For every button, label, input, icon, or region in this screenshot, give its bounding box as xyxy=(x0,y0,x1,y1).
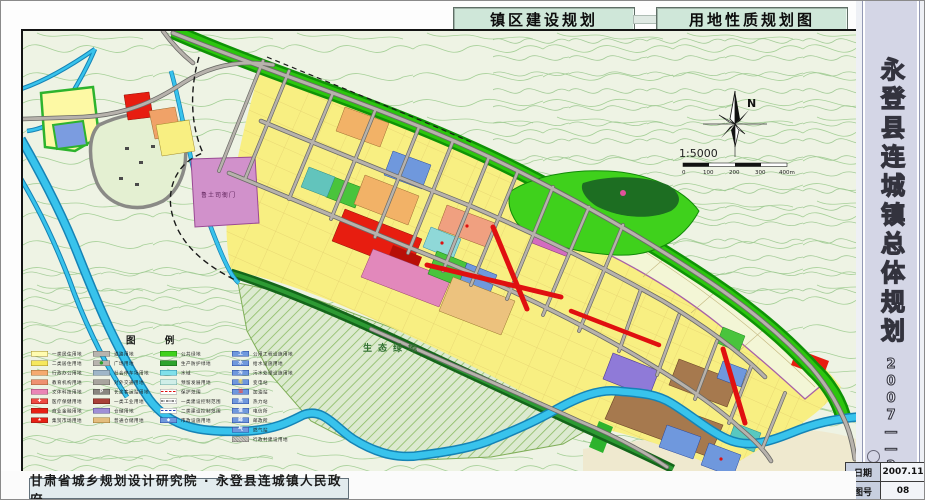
legend-column: 工公用工程设施用地水给水设施用地污污水处理设施用地电变电站油加油站热热力站信电信… xyxy=(232,351,293,443)
legend-label: 普通仓储用地 xyxy=(114,417,144,424)
legend-item: 信电信所 xyxy=(232,408,293,414)
scale-text: 1:5000 xyxy=(679,147,718,160)
legend-label: 二类建设控制范围 xyxy=(181,407,221,414)
svg-text:100: 100 xyxy=(703,170,714,176)
legend-swatch xyxy=(160,360,177,366)
svg-text:0: 0 xyxy=(682,170,686,176)
legend-column: 公共绿地生产防护绿地水域预留发展用地保护范围一类建设控制范围二类建设控制范围◆市… xyxy=(160,351,221,443)
legend-label: 行政村建设用地 xyxy=(253,436,288,443)
legend-item: 行政村建设用地 xyxy=(232,436,293,442)
legend-label: 公用工程设施用地 xyxy=(253,350,293,357)
legend-column: 一类居住用地二类居住用地行政办公用地教育机构用地文体科技用地✚医疗保健用地商业金… xyxy=(31,351,82,443)
legend-swatch: ◆ xyxy=(160,417,177,423)
title-block-row: 日期 2007.11 xyxy=(846,463,925,482)
legend-label: 一类建设控制范围 xyxy=(181,398,221,405)
legend-swatch: 水 xyxy=(232,360,249,366)
legend-item: ◆市政设施用地 xyxy=(160,417,221,423)
legend-item: 文体科技用地 xyxy=(31,389,82,395)
legend-item: 水给水设施用地 xyxy=(232,360,293,366)
legend-swatch: 邮 xyxy=(232,417,249,423)
legend-label: 长途客运站用地 xyxy=(114,388,149,395)
legend-swatch xyxy=(160,379,177,385)
legend-swatch xyxy=(31,370,48,376)
legend-title: 图 例 xyxy=(126,333,291,347)
legend-swatch: ★ xyxy=(31,417,48,423)
legend-label: 加油站 xyxy=(253,388,268,395)
legend-swatch: 电 xyxy=(232,379,249,385)
legend-swatch: ● xyxy=(93,360,110,366)
svg-text:400m: 400m xyxy=(779,170,795,176)
legend-item: ●广场用地 xyxy=(93,360,149,366)
legend-item: 水域 xyxy=(160,370,221,376)
legend-item: 对外交通用地 xyxy=(93,379,149,385)
legend-label: 污水处理设施用地 xyxy=(253,369,293,376)
legend-swatch: 信 xyxy=(232,408,249,414)
map-frame: 生态绿地 鲁土司衙门 N 1:5000 xyxy=(21,29,858,473)
legend-label: 二类居住用地 xyxy=(52,360,82,367)
legend-item: ✚医疗保健用地 xyxy=(31,398,82,404)
legend-label: 水域 xyxy=(181,369,191,376)
legend-item: 仓储用地 xyxy=(93,408,149,414)
legend-item: 二类建设控制范围 xyxy=(160,408,221,414)
legend-swatch: P xyxy=(93,389,110,395)
legend-label: 医疗保健用地 xyxy=(52,398,82,405)
planning-sheet: 镇区建设规划 用地性质规划图 xyxy=(0,0,925,500)
legend-column: 道路用地●广场用地社会停车场用地对外交通用地P长途客运站用地一类工业用地仓储用地… xyxy=(93,351,149,443)
legend-item: 公共绿地 xyxy=(160,351,221,357)
legend-label: 一类工业用地 xyxy=(114,398,144,405)
legend-item: 气燃气站 xyxy=(232,427,293,433)
legend-swatch xyxy=(160,370,177,376)
legend-label: 商业金融用地 xyxy=(52,407,82,414)
eco-label: 生态绿地 xyxy=(363,342,423,354)
drawing-title: 永登县连城镇总体规划 2007——2020 xyxy=(856,57,925,500)
legend-label: 保护范围 xyxy=(181,388,201,395)
legend-label: 变电站 xyxy=(253,379,268,386)
legend-box: 图 例 一类居住用地二类居住用地行政办公用地教育机构用地文体科技用地✚医疗保健用… xyxy=(31,333,291,408)
legend-item: 热热力站 xyxy=(232,398,293,404)
legend-item: P长途客运站用地 xyxy=(93,389,149,395)
legend-label: 广场用地 xyxy=(114,360,134,367)
legend-item: 电变电站 xyxy=(232,379,293,385)
title-block-row: 图号 08 xyxy=(846,482,925,500)
legend-item: 油加油站 xyxy=(232,389,293,395)
legend-label: 邮政所 xyxy=(253,417,268,424)
north-label: N xyxy=(747,97,756,110)
legend-swatch xyxy=(31,389,48,395)
legend-label: 电信所 xyxy=(253,407,268,414)
legend-swatch xyxy=(160,389,177,395)
sheet-title-right-text: 用地性质规划图 xyxy=(689,9,815,30)
legend-swatch xyxy=(93,417,110,423)
legend-label: 行政办公用地 xyxy=(52,369,82,376)
sheet-number-value: 08 xyxy=(881,482,925,500)
legend-swatch: 工 xyxy=(232,351,249,357)
legend-item: 工公用工程设施用地 xyxy=(232,351,293,357)
legend-swatch xyxy=(31,408,48,414)
legend-label: 集贸市场用地 xyxy=(52,417,82,424)
legend-label: 热力站 xyxy=(253,398,268,405)
legend-item: 邮邮政所 xyxy=(232,417,293,423)
legend-item: 社会停车场用地 xyxy=(93,370,149,376)
legend-swatch xyxy=(93,351,110,357)
legend-swatch xyxy=(31,379,48,385)
sheet-title-left-text: 镇区建设规划 xyxy=(490,9,598,30)
sheet-title-left: 镇区建设规划 xyxy=(453,7,635,31)
legend-item: 生产防护绿地 xyxy=(160,360,221,366)
svg-text:200: 200 xyxy=(729,170,740,176)
legend-label: 道路用地 xyxy=(114,350,134,357)
sheet-title-right: 用地性质规划图 xyxy=(656,7,848,31)
legend-item: 商业金融用地 xyxy=(31,408,82,414)
legend-swatch: 油 xyxy=(232,389,249,395)
legend-columns: 一类居住用地二类居住用地行政办公用地教育机构用地文体科技用地✚医疗保健用地商业金… xyxy=(31,351,291,443)
legend-label: 公共绿地 xyxy=(181,350,201,357)
legend-swatch xyxy=(93,379,110,385)
legend-item: ★集贸市场用地 xyxy=(31,417,82,423)
footer: 甘肃省城乡规划设计研究院 · 永登县连城镇人民政府 xyxy=(1,471,856,500)
legend-swatch xyxy=(93,398,110,404)
legend-swatch xyxy=(31,360,48,366)
legend-item: 一类居住用地 xyxy=(31,351,82,357)
legend-label: 教育机构用地 xyxy=(52,379,82,386)
legend-label: 燃气站 xyxy=(253,426,268,433)
legend-swatch xyxy=(232,436,249,442)
svg-text:300: 300 xyxy=(755,170,766,176)
title-block: 日期 2007.11 图号 08 xyxy=(845,462,925,500)
legend-swatch: 污 xyxy=(232,370,249,376)
legend-label: 给水设施用地 xyxy=(253,360,283,367)
sidebar: 永登县连城镇总体规划 2007——2020 xyxy=(856,1,925,500)
credit-text: 甘肃省城乡规划设计研究院 · 永登县连城镇人民政府 xyxy=(30,470,348,500)
legend-swatch xyxy=(31,351,48,357)
title-connector xyxy=(633,15,658,24)
legend-label: 仓储用地 xyxy=(114,407,134,414)
heritage-label: 鲁土司衙门 xyxy=(201,191,236,199)
date-value: 2007.11 xyxy=(881,463,925,482)
legend-swatch: 气 xyxy=(232,427,249,433)
legend-item: 污污水处理设施用地 xyxy=(232,370,293,376)
legend-label: 生产防护绿地 xyxy=(181,360,211,367)
legend-item: 预留发展用地 xyxy=(160,379,221,385)
credit-box: 甘肃省城乡规划设计研究院 · 永登县连城镇人民政府 xyxy=(29,478,349,499)
legend-label: 文体科技用地 xyxy=(52,388,82,395)
legend-item: 教育机构用地 xyxy=(31,379,82,385)
legend-label: 对外交通用地 xyxy=(114,379,144,386)
legend-label: 预留发展用地 xyxy=(181,379,211,386)
legend-swatch xyxy=(93,408,110,414)
legend-label: 社会停车场用地 xyxy=(114,369,149,376)
legend-label: 一类居住用地 xyxy=(52,350,82,357)
legend-swatch xyxy=(160,408,177,414)
legend-swatch xyxy=(93,370,110,376)
legend-item: 一类建设控制范围 xyxy=(160,398,221,404)
legend-item: 道路用地 xyxy=(93,351,149,357)
drawing-title-text: 永登县连城镇总体规划 xyxy=(874,57,909,347)
legend-item: 行政办公用地 xyxy=(31,370,82,376)
legend-swatch: ✚ xyxy=(31,398,48,404)
legend-swatch xyxy=(160,351,177,357)
legend-label: 市政设施用地 xyxy=(181,417,211,424)
legend-item: 保护范围 xyxy=(160,389,221,395)
legend-item: 普通仓储用地 xyxy=(93,417,149,423)
legend-swatch: 热 xyxy=(232,398,249,404)
legend-item: 二类居住用地 xyxy=(31,360,82,366)
legend-item: 一类工业用地 xyxy=(93,398,149,404)
legend-swatch xyxy=(160,398,177,404)
